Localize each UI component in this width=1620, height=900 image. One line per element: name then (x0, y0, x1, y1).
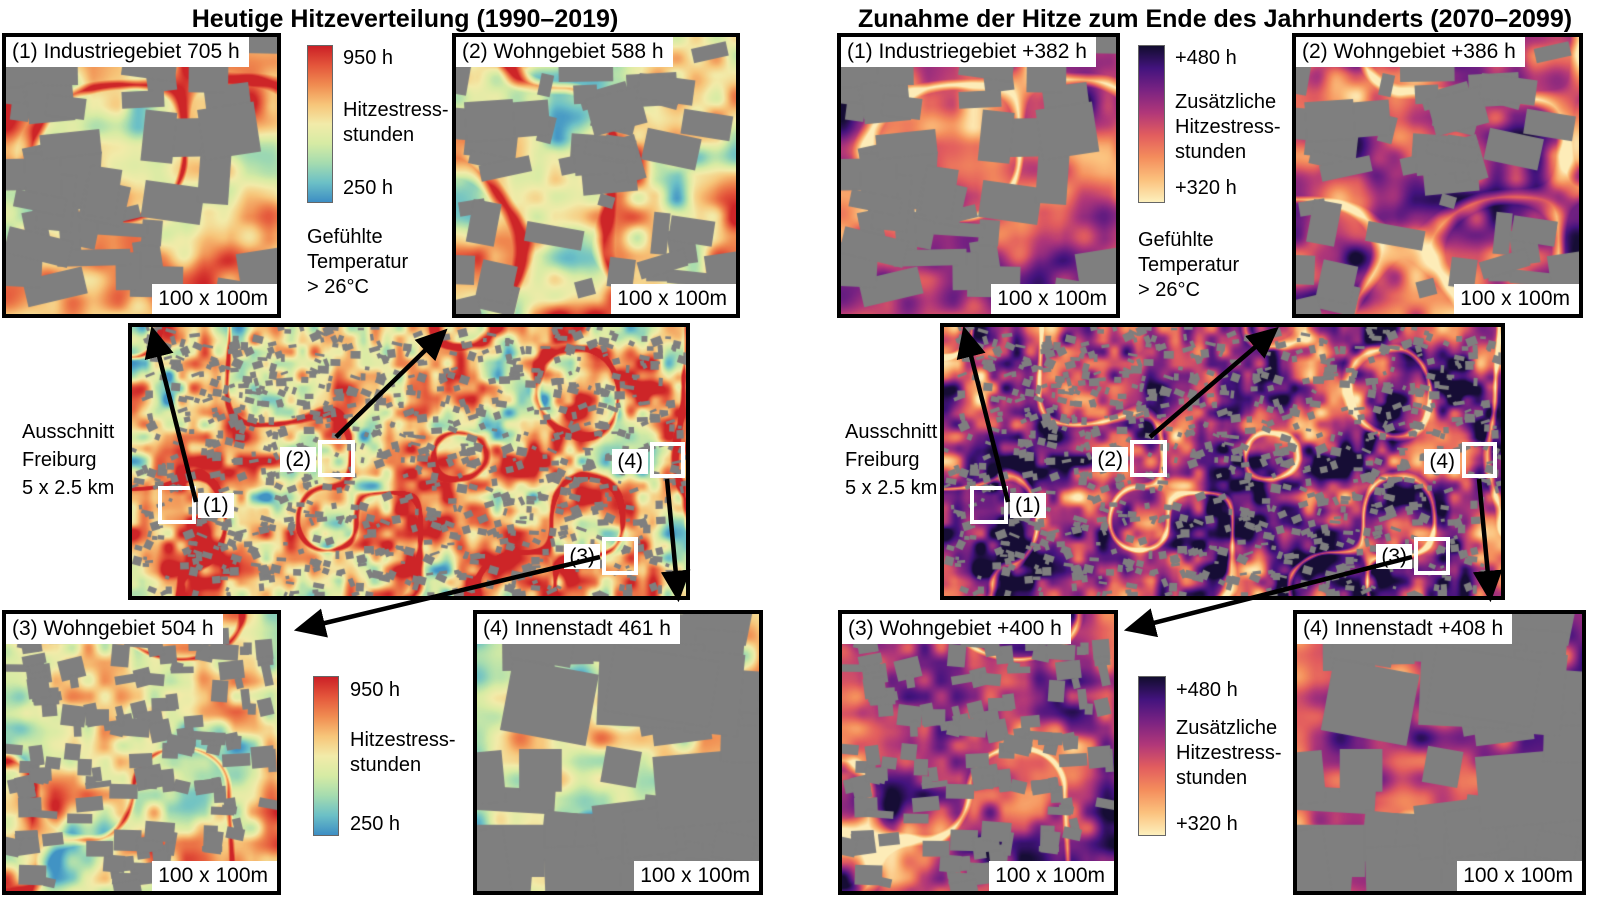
inset-future-2: (2) Wohngebiet +386 h 100 x 100m (1292, 33, 1583, 318)
inset-current-4: (4) Innenstadt 461 h 100 x 100m (473, 610, 763, 895)
map-marker-label: (1) (198, 493, 234, 518)
panel-title-current: Heutige Hitzeverteilung (1990–2019) (0, 5, 810, 34)
colorbar-title: Hitzestress- stunden (343, 98, 449, 148)
map-marker-4-future: (4) (1462, 442, 1497, 478)
colorbar-title: Zusätzliche Hitzestress- stunden (1176, 716, 1282, 791)
heatmap-canvas-future-2 (1296, 37, 1579, 314)
figure-root: Heutige Hitzeverteilung (1990–2019) Zuna… (0, 0, 1620, 900)
colorbar-max-label: 950 h (350, 678, 400, 703)
inset-scale: 100 x 100m (152, 861, 277, 891)
map-marker-2-current: (2) (318, 440, 355, 477)
map-marker-2-future: (2) (1130, 440, 1167, 477)
map-marker-label: (2) (280, 447, 316, 472)
colorbar-min-label: +320 h (1176, 812, 1238, 837)
heatmap-canvas-future-1 (841, 37, 1116, 314)
map-future: (1) (2) (3) (4) (940, 323, 1505, 600)
map-marker-label: (2) (1092, 447, 1128, 472)
inset-current-3: (3) Wohngebiet 504 h 100 x 100m (2, 610, 281, 895)
map-marker-label: (1) (1010, 493, 1046, 518)
colorbar-min-label: 250 h (343, 176, 393, 201)
inset-scale: 100 x 100m (152, 284, 277, 314)
heatmap-canvas-current-1 (6, 37, 277, 314)
heatmap-canvas-current-2 (456, 37, 736, 314)
inset-scale: 100 x 100m (1457, 861, 1582, 891)
inset-scale: 100 x 100m (611, 284, 736, 314)
colorbar-future-bottom (1138, 676, 1166, 836)
colorbar-max-label: +480 h (1175, 46, 1237, 71)
heatmap-canvas-current-4 (477, 614, 759, 891)
map-marker-label: (4) (1424, 449, 1460, 474)
colorbar-max-label: +480 h (1176, 678, 1238, 703)
colorbar-title: Zusätzliche Hitzestress- stunden (1175, 90, 1281, 165)
inset-scale: 100 x 100m (989, 861, 1114, 891)
map-caption-future: Ausschnitt Freiburg 5 x 2.5 km (845, 418, 937, 502)
colorbar-min-label: 250 h (350, 812, 400, 837)
inset-title: (2) Wohngebiet +386 h (1296, 37, 1525, 67)
threshold-note: Gefühlte Temperatur > 26°C (1138, 228, 1239, 303)
colorbar-min-label: +320 h (1175, 176, 1237, 201)
inset-title: (3) Wohngebiet +400 h (842, 614, 1071, 644)
inset-current-1: (1) Industriegebiet 705 h 100 x 100m (2, 33, 281, 318)
map-caption-current: Ausschnitt Freiburg 5 x 2.5 km (22, 418, 114, 502)
threshold-note: Gefühlte Temperatur > 26°C (307, 225, 408, 300)
map-marker-label: (4) (612, 449, 648, 474)
map-current: (1) (2) (3) (4) (128, 323, 690, 600)
inset-title: (1) Industriegebiet +382 h (841, 37, 1096, 67)
map-marker-4-current: (4) (650, 442, 685, 478)
inset-title: (3) Wohngebiet 504 h (6, 614, 223, 644)
inset-scale: 100 x 100m (991, 284, 1116, 314)
inset-title: (2) Wohngebiet 588 h (456, 37, 673, 67)
colorbar-current-bottom (313, 676, 339, 836)
map-marker-3-current: (3) (602, 537, 638, 575)
colorbar-current-top (307, 45, 333, 203)
colorbar-title: Hitzestress- stunden (350, 728, 456, 778)
inset-future-3: (3) Wohngebiet +400 h 100 x 100m (838, 610, 1118, 895)
inset-future-1: (1) Industriegebiet +382 h 100 x 100m (837, 33, 1120, 318)
heatmap-canvas-current-3 (6, 614, 277, 891)
panel-title-future: Zunahme der Hitze zum Ende des Jahrhunde… (810, 5, 1620, 34)
inset-current-2: (2) Wohngebiet 588 h 100 x 100m (452, 33, 740, 318)
map-marker-label: (3) (564, 544, 600, 569)
inset-future-4: (4) Innenstadt +408 h 100 x 100m (1293, 610, 1586, 895)
map-marker-label: (3) (1376, 544, 1412, 569)
heatmap-canvas-future-4 (1297, 614, 1582, 891)
colorbar-future-top (1138, 45, 1165, 203)
inset-title: (4) Innenstadt +408 h (1297, 614, 1512, 644)
inset-scale: 100 x 100m (1454, 284, 1579, 314)
inset-title: (1) Industriegebiet 705 h (6, 37, 249, 67)
heatmap-canvas-future-3 (842, 614, 1114, 891)
inset-scale: 100 x 100m (634, 861, 759, 891)
map-marker-3-future: (3) (1414, 537, 1450, 575)
inset-title: (4) Innenstadt 461 h (477, 614, 680, 644)
map-marker-1-future: (1) (970, 486, 1008, 524)
colorbar-max-label: 950 h (343, 46, 393, 71)
map-marker-1-current: (1) (158, 486, 196, 524)
